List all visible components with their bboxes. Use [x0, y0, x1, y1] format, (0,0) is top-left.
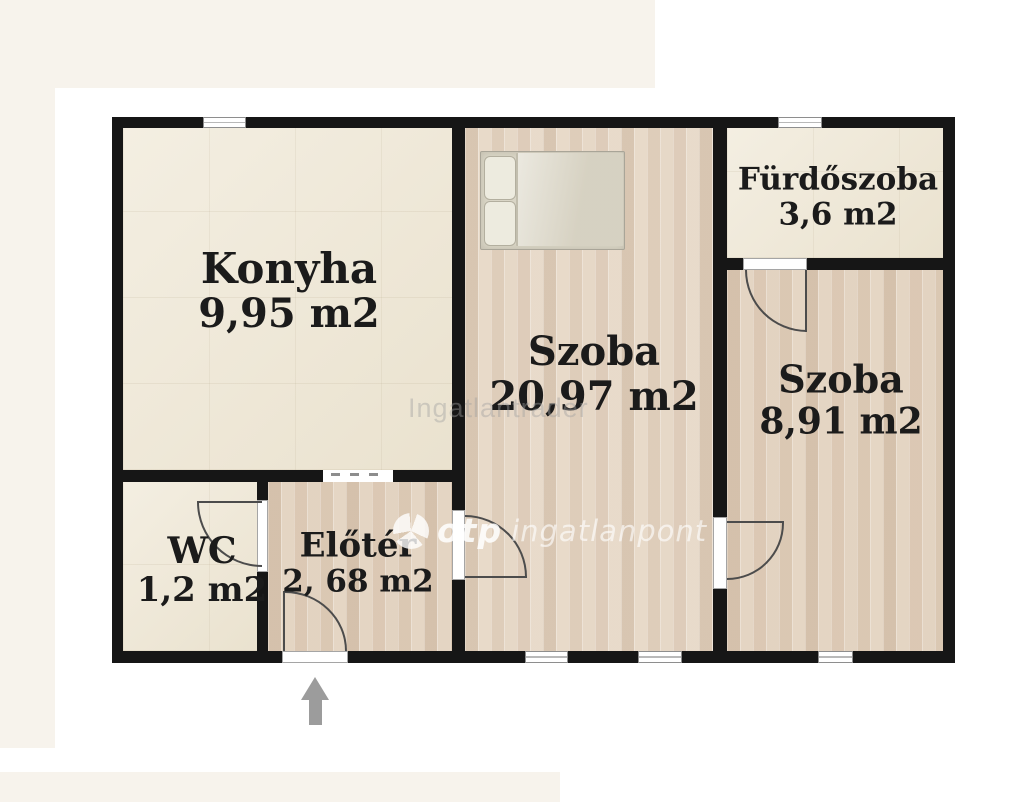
window-szoba-middle-1	[525, 651, 568, 663]
door-panel-szoba-szoba	[727, 521, 784, 523]
door-furdoszoba	[743, 258, 807, 270]
pillow-icon	[484, 156, 516, 200]
watermark-ingatlantrader: Ingatlantrader	[408, 393, 589, 424]
blanket-icon	[516, 153, 623, 246]
room-area: 3,6 m2	[738, 197, 938, 232]
room-name: WC	[167, 530, 236, 572]
door-panel-furdoszoba	[805, 270, 807, 332]
window-szoba-middle-2	[638, 651, 682, 663]
otp-brand-text: otp	[437, 511, 502, 550]
otp-brand-suffix-text: ingatlanpont	[511, 514, 707, 548]
room-area: 1,2 m2	[137, 571, 268, 609]
door-szoba-szoba	[713, 517, 727, 589]
room-name: Szoba	[528, 328, 660, 375]
pillow-icon	[484, 201, 516, 246]
margin-bottom-band	[0, 772, 560, 802]
otp-logo-icon	[393, 513, 429, 549]
label-furdoszoba: Fürdőszoba 3,6 m2	[738, 162, 938, 231]
room-area: 9,95 m2	[198, 292, 380, 337]
window-szoba-right	[818, 651, 853, 663]
room-area: 8,91 m2	[759, 401, 922, 441]
door-entrance	[282, 651, 348, 663]
bed-icon	[480, 151, 625, 250]
room-name: Fürdőszoba	[738, 161, 938, 197]
watermark-otp-ingatlanpont: otp ingatlanpont	[393, 511, 707, 550]
floorplan-canvas: Konyha 9,95 m2 Szoba 20,97 m2 Fürdőszoba…	[112, 117, 955, 663]
label-konyha: Konyha 9,95 m2	[198, 245, 380, 337]
entrance-arrow-icon	[301, 677, 329, 700]
label-szoba-right: Szoba 8,91 m2	[759, 359, 922, 442]
entrance-arrow-shaft	[309, 699, 322, 725]
door-panel-eloter-szoba	[465, 576, 527, 578]
door-panel-wc	[197, 501, 262, 503]
floorplan-image: Konyha 9,95 m2 Szoba 20,97 m2 Fürdőszoba…	[0, 0, 1024, 802]
window-konyha	[203, 117, 246, 128]
room-area: 2, 68 m2	[282, 565, 433, 600]
room-szoba-right-floor	[727, 270, 943, 651]
margin-left-band	[0, 0, 55, 748]
room-name: Konyha	[201, 244, 377, 293]
label-wc: WC 1,2 m2	[137, 531, 268, 609]
window-furdoszoba	[778, 117, 822, 128]
opening-konyha-eloter	[323, 470, 393, 482]
door-panel-entrance	[283, 591, 285, 651]
room-name: Szoba	[778, 357, 904, 402]
margin-top-band	[0, 0, 655, 88]
